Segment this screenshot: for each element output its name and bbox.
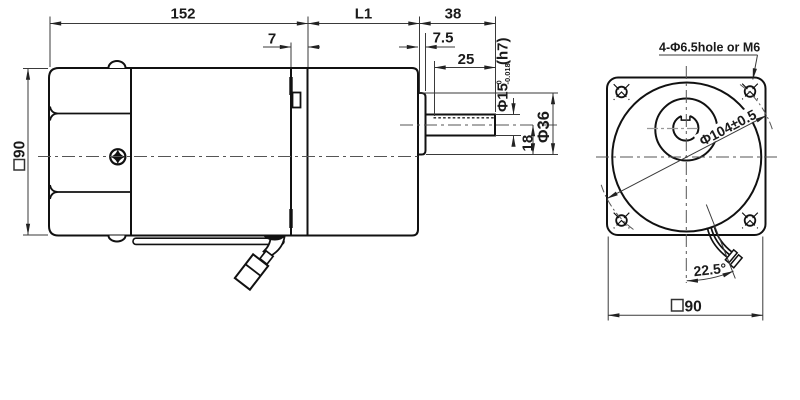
svg-text:18: 18 <box>520 135 537 152</box>
svg-text:7.5: 7.5 <box>433 30 454 47</box>
svg-text:-0.018: -0.018 <box>503 63 512 84</box>
svg-text:38: 38 <box>445 6 462 23</box>
svg-text:Φ15: Φ15 <box>495 83 512 112</box>
svg-text:(h7): (h7) <box>495 38 512 66</box>
svg-text:25: 25 <box>458 51 475 68</box>
svg-text:Φ36: Φ36 <box>535 111 553 143</box>
svg-text:7: 7 <box>268 31 276 48</box>
svg-text:22.5°: 22.5° <box>693 260 727 279</box>
svg-text:4-Φ6.5hole or M6: 4-Φ6.5hole or M6 <box>659 41 760 55</box>
svg-text:L1: L1 <box>355 6 373 23</box>
svg-text:90: 90 <box>12 141 29 158</box>
svg-text:90: 90 <box>685 299 702 316</box>
svg-text:152: 152 <box>170 6 195 23</box>
